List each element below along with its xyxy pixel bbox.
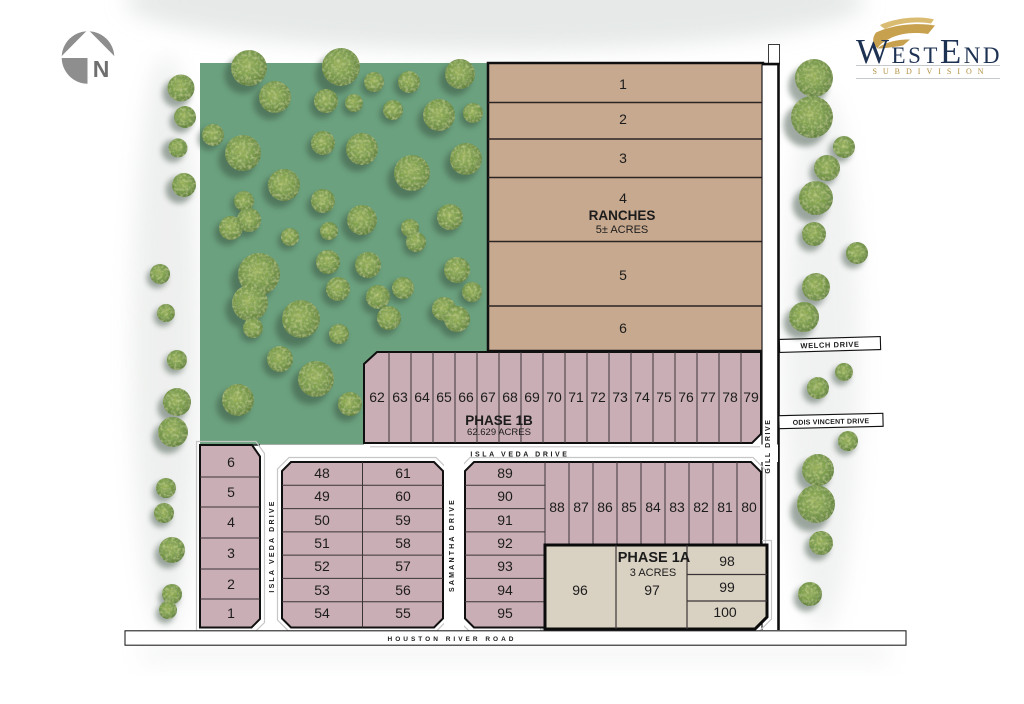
svg-text:86: 86 [597,499,613,515]
svg-text:2: 2 [619,111,627,127]
svg-text:49: 49 [314,488,330,504]
svg-text:87: 87 [573,499,589,515]
svg-text:N: N [93,56,110,82]
svg-text:97: 97 [644,582,660,598]
svg-text:99: 99 [719,579,735,595]
svg-text:PHASE 1B: PHASE 1B [465,413,533,428]
svg-text:92: 92 [497,535,513,551]
svg-text:60: 60 [395,488,411,504]
svg-text:1: 1 [619,76,627,92]
svg-text:50: 50 [314,512,330,528]
svg-text:94: 94 [497,582,513,598]
svg-text:59: 59 [395,512,411,528]
svg-text:54: 54 [314,605,330,621]
svg-text:75: 75 [656,389,672,405]
svg-text:5: 5 [619,267,627,283]
svg-text:98: 98 [719,553,735,569]
svg-text:51: 51 [314,535,330,551]
svg-text:100: 100 [713,604,737,620]
svg-text:48: 48 [314,465,330,481]
svg-text:53: 53 [314,582,330,598]
svg-text:80: 80 [741,499,757,515]
svg-text:62.629 ACRES: 62.629 ACRES [467,427,531,438]
svg-text:ISLA VEDA DRIVE: ISLA VEDA DRIVE [269,499,276,592]
svg-text:RANCHES: RANCHES [589,208,656,223]
svg-text:90: 90 [497,488,513,504]
svg-text:83: 83 [669,499,685,515]
svg-text:3: 3 [619,150,627,166]
svg-text:74: 74 [634,389,650,405]
svg-text:70: 70 [546,389,562,405]
svg-text:67: 67 [480,389,496,405]
svg-text:69: 69 [524,389,540,405]
svg-text:82: 82 [693,499,709,515]
svg-text:96: 96 [572,582,588,598]
svg-text:GILL DRIVE: GILL DRIVE [765,418,772,473]
svg-text:6: 6 [619,320,627,336]
svg-text:88: 88 [549,499,565,515]
svg-text:3 ACRES: 3 ACRES [630,567,676,579]
svg-text:57: 57 [395,558,411,574]
svg-text:64: 64 [414,389,430,405]
svg-text:SAMANTHA DRIVE: SAMANTHA DRIVE [449,498,456,592]
svg-text:PHASE 1A: PHASE 1A [618,550,691,566]
svg-text:85: 85 [621,499,637,515]
svg-text:77: 77 [700,389,716,405]
svg-text:84: 84 [645,499,661,515]
svg-text:3: 3 [227,545,235,561]
svg-text:63: 63 [392,389,408,405]
svg-text:55: 55 [395,605,411,621]
svg-text:2: 2 [227,576,235,592]
svg-text:93: 93 [497,558,513,574]
svg-text:68: 68 [502,389,518,405]
svg-text:91: 91 [497,512,513,528]
svg-text:72: 72 [590,389,606,405]
svg-text:65: 65 [436,389,452,405]
svg-text:61: 61 [395,465,411,481]
svg-text:73: 73 [612,389,628,405]
svg-text:81: 81 [717,499,733,515]
svg-text:5± ACRES: 5± ACRES [596,224,649,236]
svg-text:95: 95 [497,605,513,621]
svg-text:1: 1 [227,605,235,621]
svg-text:5: 5 [227,484,235,500]
svg-text:78: 78 [722,389,738,405]
svg-text:71: 71 [568,389,584,405]
svg-text:62: 62 [369,389,385,405]
svg-text:4: 4 [619,190,627,206]
svg-text:58: 58 [395,535,411,551]
svg-text:6: 6 [227,454,235,470]
svg-text:76: 76 [678,389,694,405]
svg-text:HOUSTON RIVER ROAD: HOUSTON RIVER ROAD [388,636,517,643]
svg-text:56: 56 [395,582,411,598]
svg-text:4: 4 [227,514,235,530]
svg-text:79: 79 [743,389,759,405]
svg-text:89: 89 [497,465,513,481]
svg-text:WELCH DRIVE: WELCH DRIVE [800,340,859,351]
svg-text:52: 52 [314,558,330,574]
svg-text:66: 66 [458,389,474,405]
